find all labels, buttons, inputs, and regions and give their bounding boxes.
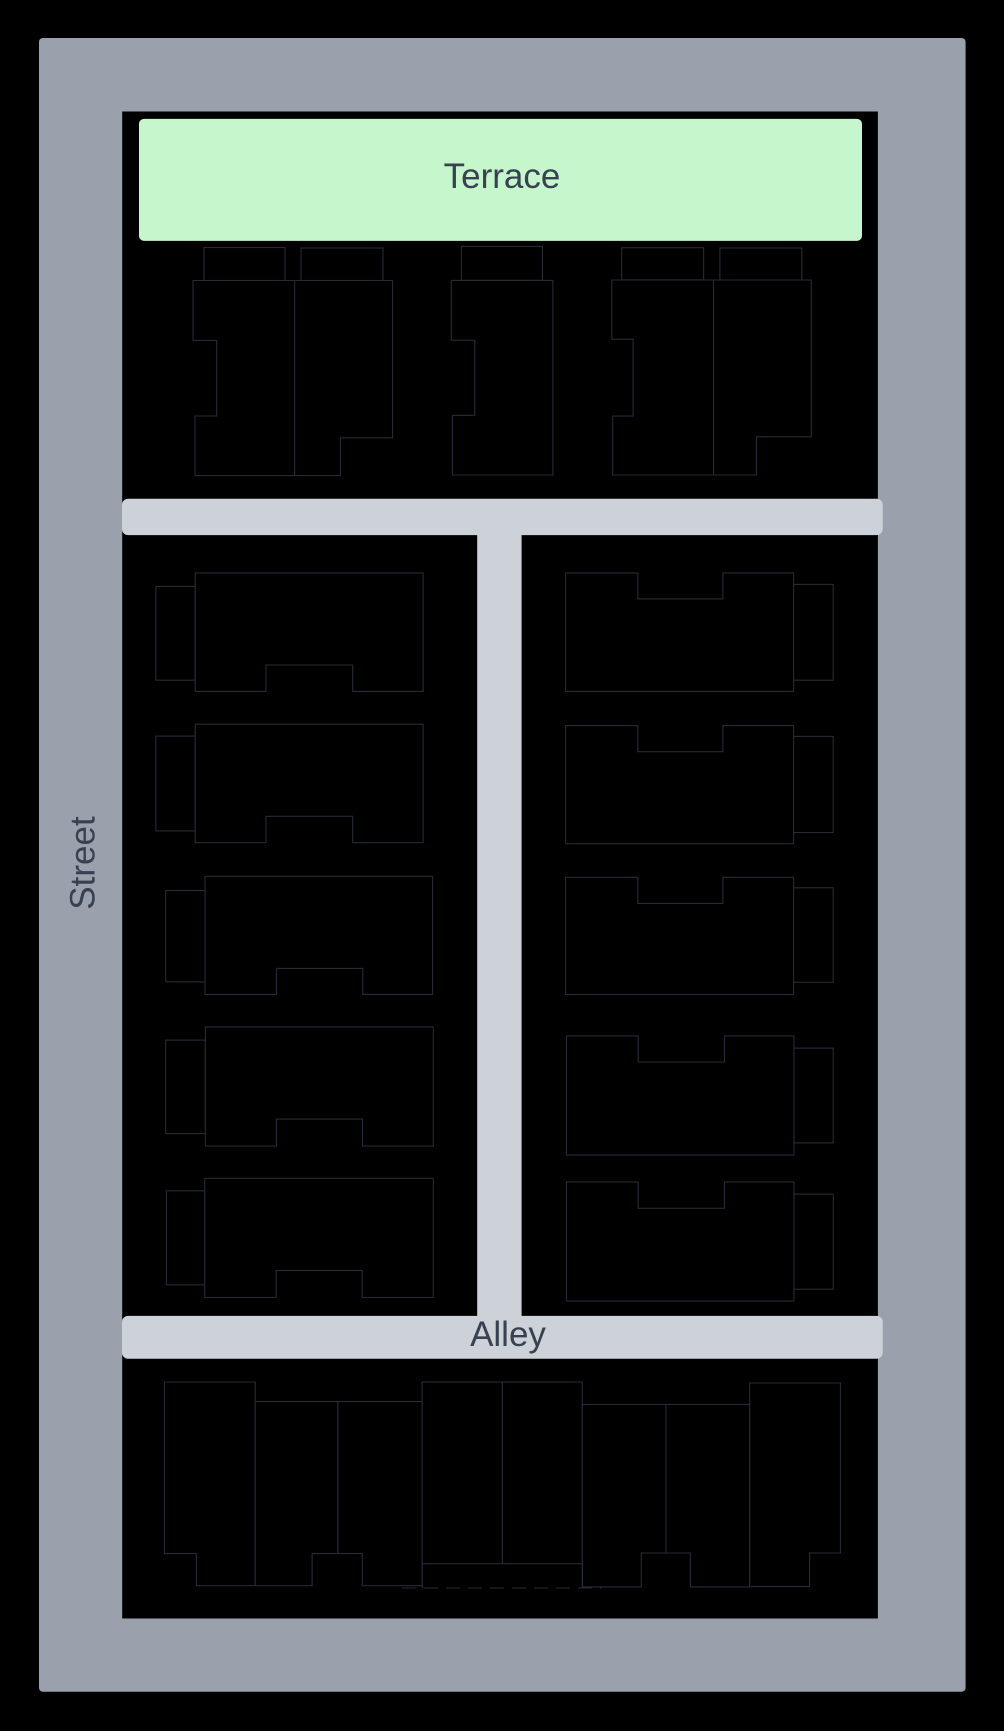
- svg-text:Alley: Alley: [470, 1315, 546, 1354]
- svg-text:Terrace: Terrace: [444, 157, 561, 196]
- svg-text:Street: Street: [64, 816, 103, 910]
